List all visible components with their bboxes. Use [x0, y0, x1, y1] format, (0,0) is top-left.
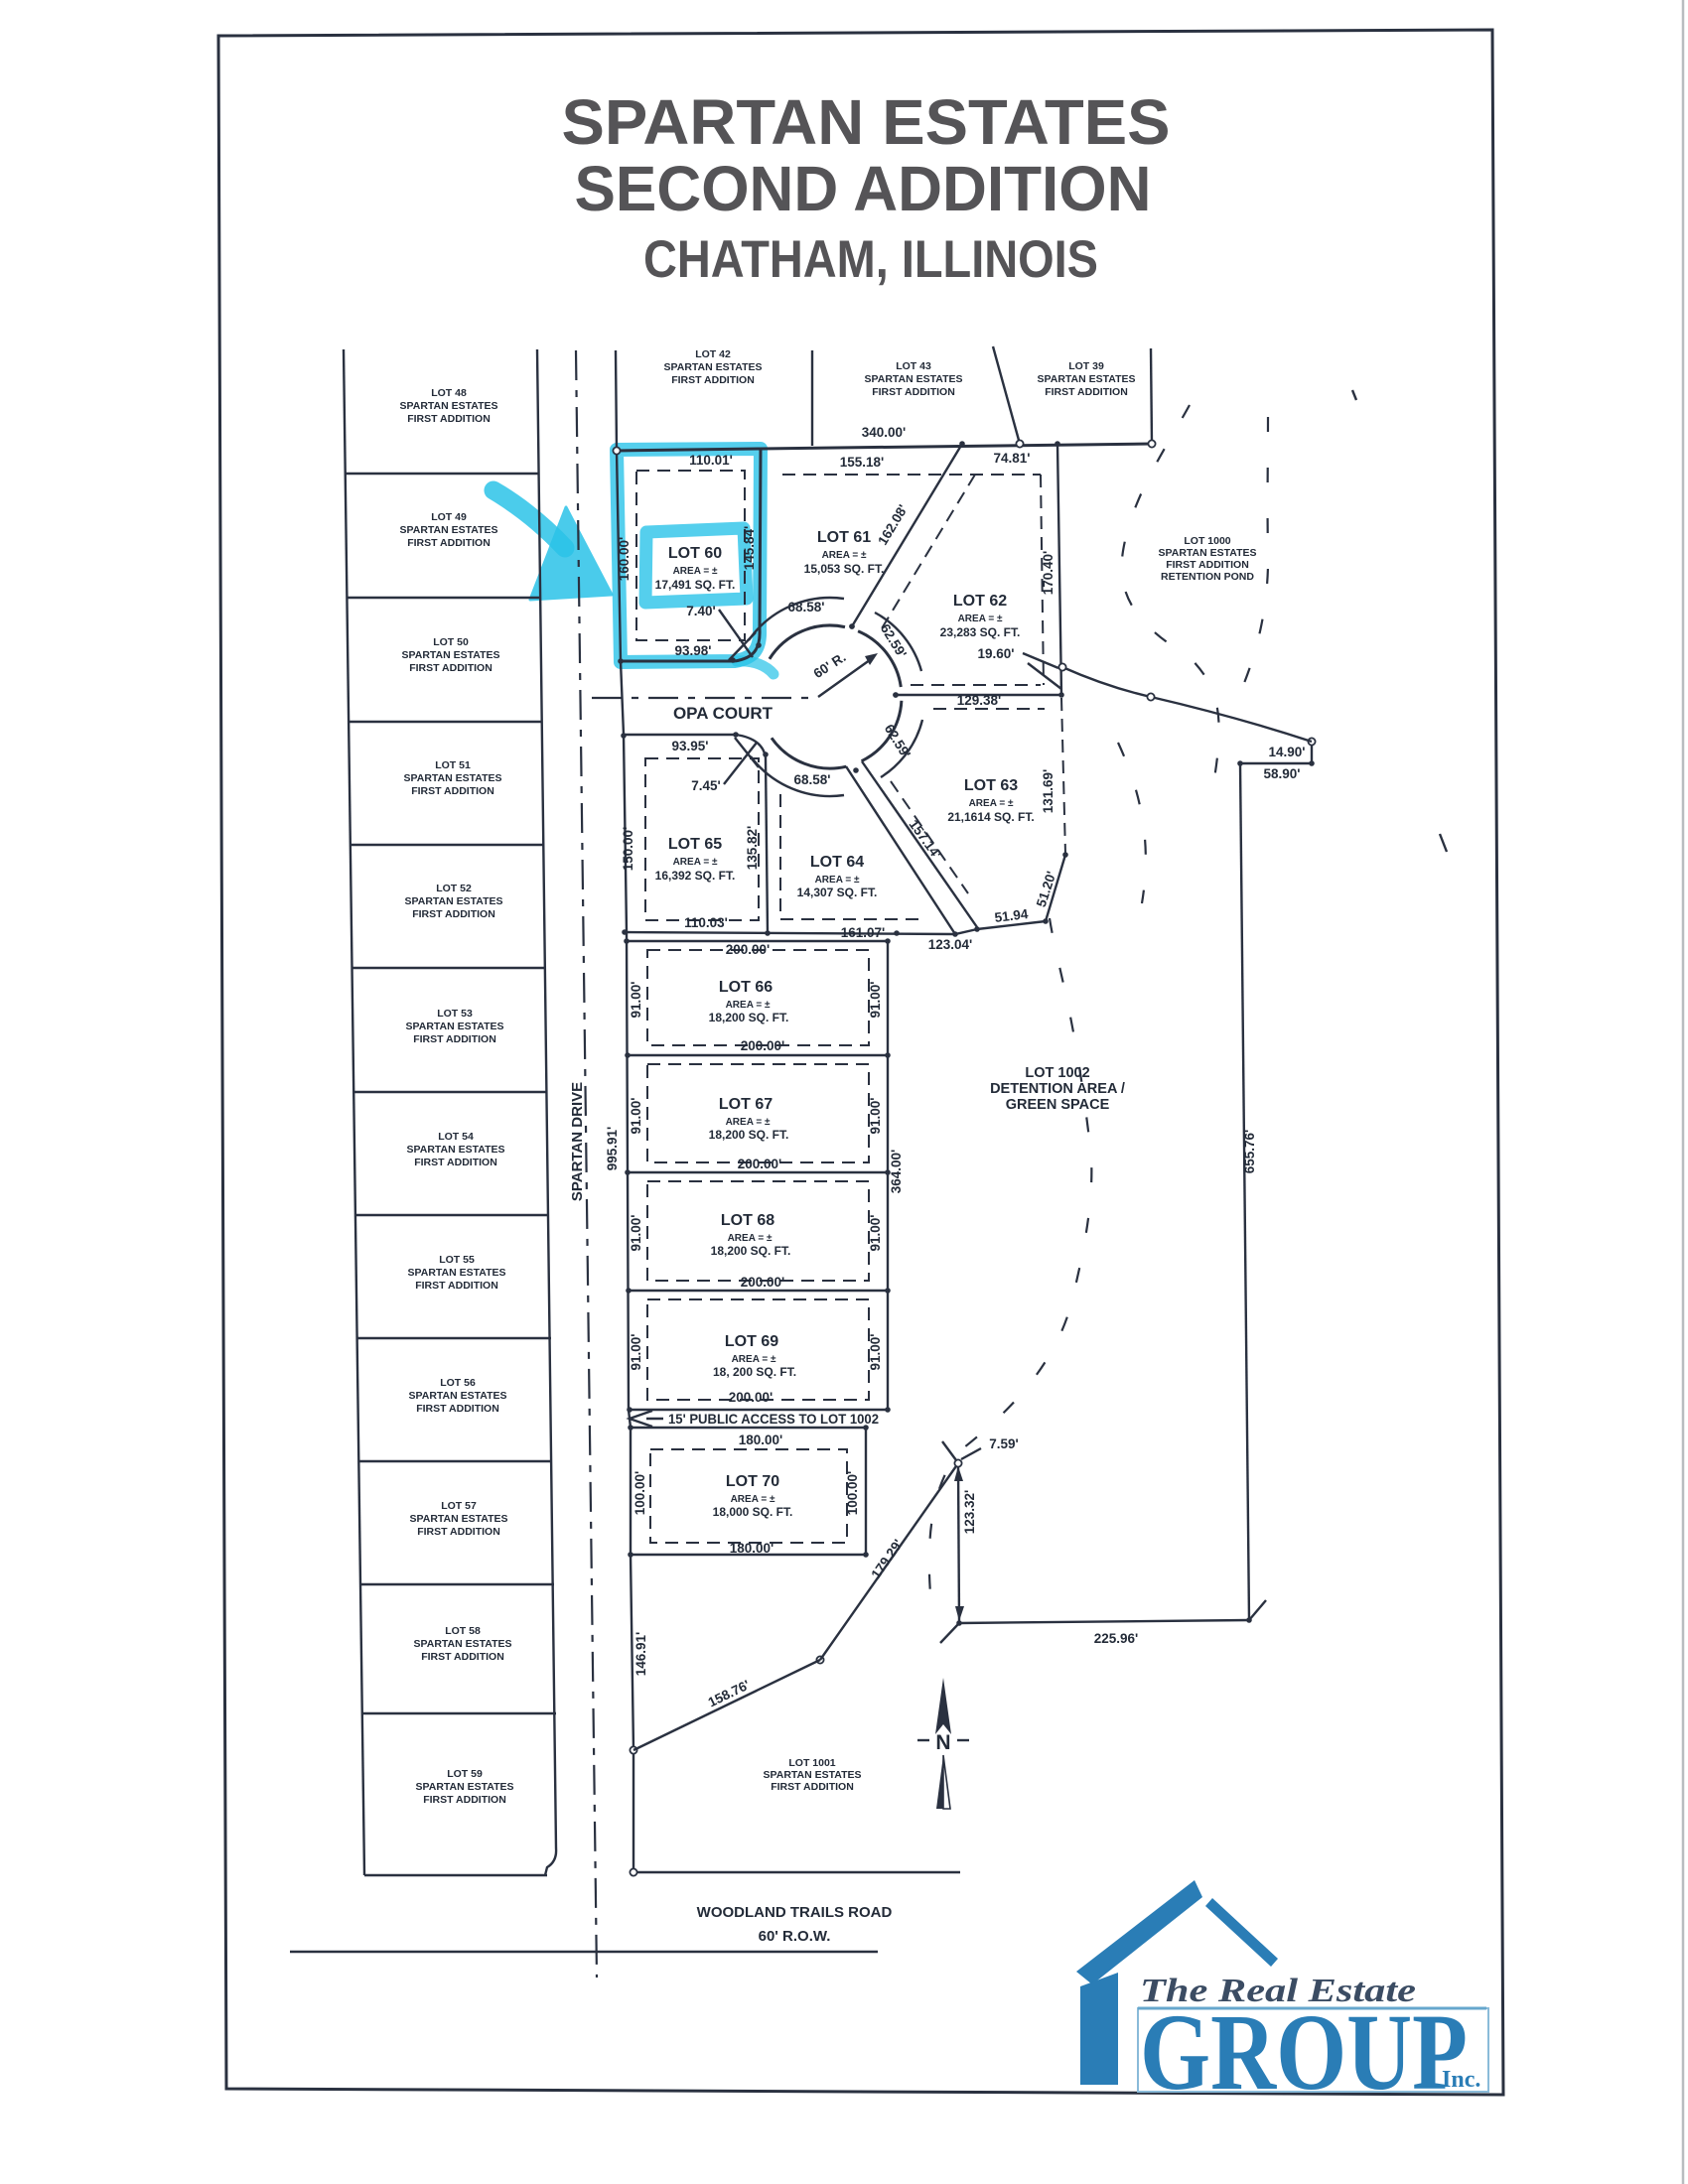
svg-text:200.00': 200.00' — [741, 1038, 785, 1053]
svg-text:LOT 68: LOT 68 — [721, 1212, 774, 1229]
svg-text:91.00': 91.00' — [629, 982, 643, 1019]
svg-text:AREA = ±: AREA = ± — [969, 798, 1014, 809]
svg-text:123.04': 123.04' — [928, 937, 973, 952]
svg-text:AREA = ±: AREA = ± — [822, 550, 867, 561]
svg-text:LOT 67: LOT 67 — [719, 1096, 773, 1113]
svg-text:LOT 66: LOT 66 — [719, 979, 773, 996]
svg-text:AREA = ±: AREA = ± — [726, 1000, 771, 1011]
svg-text:AREA = ±: AREA = ± — [815, 875, 860, 886]
svg-text:AREA = ±: AREA = ± — [728, 1233, 773, 1244]
svg-text:91.00': 91.00' — [629, 1215, 643, 1252]
svg-text:93.95': 93.95' — [672, 739, 709, 753]
svg-text:14.90': 14.90' — [1269, 745, 1306, 759]
svg-text:146.91': 146.91' — [633, 1632, 648, 1677]
svg-text:74.81': 74.81' — [994, 451, 1031, 466]
svg-text:Inc.: Inc. — [1442, 2067, 1480, 2093]
svg-text:60' R.O.W.: 60' R.O.W. — [759, 1928, 831, 1945]
svg-text:160.00': 160.00' — [617, 537, 632, 582]
svg-text:14,307 SQ. FT.: 14,307 SQ. FT. — [797, 886, 878, 899]
svg-text:18,200 SQ. FT.: 18,200 SQ. FT. — [709, 1011, 789, 1024]
svg-text:16,392 SQ. FT.: 16,392 SQ. FT. — [655, 869, 736, 883]
svg-text:180.00': 180.00' — [730, 1541, 774, 1556]
svg-text:91.00': 91.00' — [629, 1334, 643, 1371]
svg-text:AREA = ±: AREA = ± — [731, 1494, 775, 1505]
svg-text:WOODLAND TRAILS ROAD: WOODLAND TRAILS ROAD — [697, 1904, 893, 1921]
svg-text:145.84': 145.84' — [742, 526, 757, 571]
svg-text:340.00': 340.00' — [862, 425, 907, 440]
svg-text:91.00': 91.00' — [629, 1098, 643, 1135]
svg-text:CHATHAM, ILLINOIS: CHATHAM, ILLINOIS — [643, 230, 1098, 289]
svg-text:SPARTAN DRIVE: SPARTAN DRIVE — [569, 1082, 586, 1201]
svg-text:N: N — [935, 1731, 950, 1754]
svg-text:161.07': 161.07' — [841, 925, 886, 940]
svg-text:123.32': 123.32' — [962, 1490, 977, 1535]
svg-text:180.00': 180.00' — [739, 1433, 783, 1447]
svg-text:58.90': 58.90' — [1264, 766, 1301, 781]
svg-text:7.45': 7.45' — [691, 778, 721, 793]
svg-text:AREA = ±: AREA = ± — [732, 1354, 776, 1365]
svg-text:LOT 61: LOT 61 — [817, 529, 871, 546]
svg-text:150.00': 150.00' — [621, 827, 635, 872]
svg-text:91.00': 91.00' — [868, 982, 883, 1019]
svg-text:135.82': 135.82' — [745, 826, 760, 871]
svg-text:15,053 SQ. FT.: 15,053 SQ. FT. — [804, 562, 885, 576]
svg-text:AREA = ±: AREA = ± — [726, 1117, 771, 1128]
svg-text:LOT 60: LOT 60 — [668, 545, 722, 562]
svg-text:23,283 SQ. FT.: 23,283 SQ. FT. — [940, 625, 1021, 639]
svg-text:GROUP: GROUP — [1140, 1991, 1468, 2113]
svg-text:18,000 SQ. FT.: 18,000 SQ. FT. — [713, 1505, 793, 1519]
svg-text:129.38': 129.38' — [957, 693, 1002, 708]
svg-text:AREA = ±: AREA = ± — [673, 566, 718, 577]
svg-text:655.76': 655.76' — [1242, 1130, 1257, 1174]
svg-text:91.00': 91.00' — [868, 1215, 883, 1252]
svg-text:200.00': 200.00' — [738, 1157, 782, 1171]
svg-text:21,1614 SQ. FT.: 21,1614 SQ. FT. — [947, 810, 1034, 824]
svg-text:170.40': 170.40' — [1041, 551, 1055, 596]
svg-text:15' PUBLIC ACCESS TO LOT 1002: 15' PUBLIC ACCESS TO LOT 1002 — [668, 1411, 879, 1427]
svg-text:364.00': 364.00' — [889, 1150, 904, 1194]
svg-text:OPA COURT: OPA COURT — [673, 704, 774, 723]
svg-text:110.03': 110.03' — [684, 915, 728, 930]
svg-text:110.01': 110.01' — [689, 453, 733, 468]
svg-text:7.40': 7.40' — [686, 604, 716, 618]
svg-text:91.00': 91.00' — [868, 1098, 883, 1135]
svg-text:LOT 62: LOT 62 — [953, 593, 1007, 610]
svg-text:155.18': 155.18' — [840, 455, 885, 470]
svg-text:SPARTAN ESTATES: SPARTAN ESTATES — [562, 86, 1171, 158]
svg-text:68.58': 68.58' — [794, 772, 831, 787]
svg-text:131.69': 131.69' — [1041, 769, 1055, 814]
svg-text:93.98': 93.98' — [675, 643, 712, 658]
svg-text:LOT 63: LOT 63 — [964, 777, 1018, 794]
svg-text:LOT 70: LOT 70 — [726, 1473, 779, 1490]
svg-text:AREA = ±: AREA = ± — [673, 857, 718, 868]
svg-text:17,491 SQ. FT.: 17,491 SQ. FT. — [655, 578, 736, 592]
svg-text:LOT 69: LOT 69 — [725, 1333, 778, 1350]
svg-text:LOT 64: LOT 64 — [810, 854, 864, 871]
svg-text:LOT 65: LOT 65 — [668, 836, 722, 853]
svg-text:200.00': 200.00' — [741, 1275, 785, 1290]
svg-text:19.60': 19.60' — [978, 646, 1015, 661]
svg-text:SECOND ADDITION: SECOND ADDITION — [575, 153, 1152, 224]
svg-text:225.96': 225.96' — [1094, 1631, 1139, 1646]
svg-text:18, 200 SQ. FT.: 18, 200 SQ. FT. — [713, 1365, 796, 1379]
svg-text:AREA = ±: AREA = ± — [958, 614, 1003, 624]
svg-text:995.91': 995.91' — [605, 1127, 620, 1171]
svg-text:200.00': 200.00' — [726, 942, 771, 957]
svg-text:100.00': 100.00' — [845, 1471, 860, 1516]
svg-text:200.00': 200.00' — [729, 1390, 774, 1405]
svg-text:91.00': 91.00' — [868, 1334, 883, 1371]
svg-text:100.00': 100.00' — [633, 1471, 647, 1516]
svg-text:18,200 SQ. FT.: 18,200 SQ. FT. — [711, 1244, 791, 1258]
svg-text:18,200 SQ. FT.: 18,200 SQ. FT. — [709, 1128, 789, 1142]
svg-text:7.59': 7.59' — [989, 1436, 1019, 1451]
svg-text:68.58': 68.58' — [788, 600, 825, 614]
